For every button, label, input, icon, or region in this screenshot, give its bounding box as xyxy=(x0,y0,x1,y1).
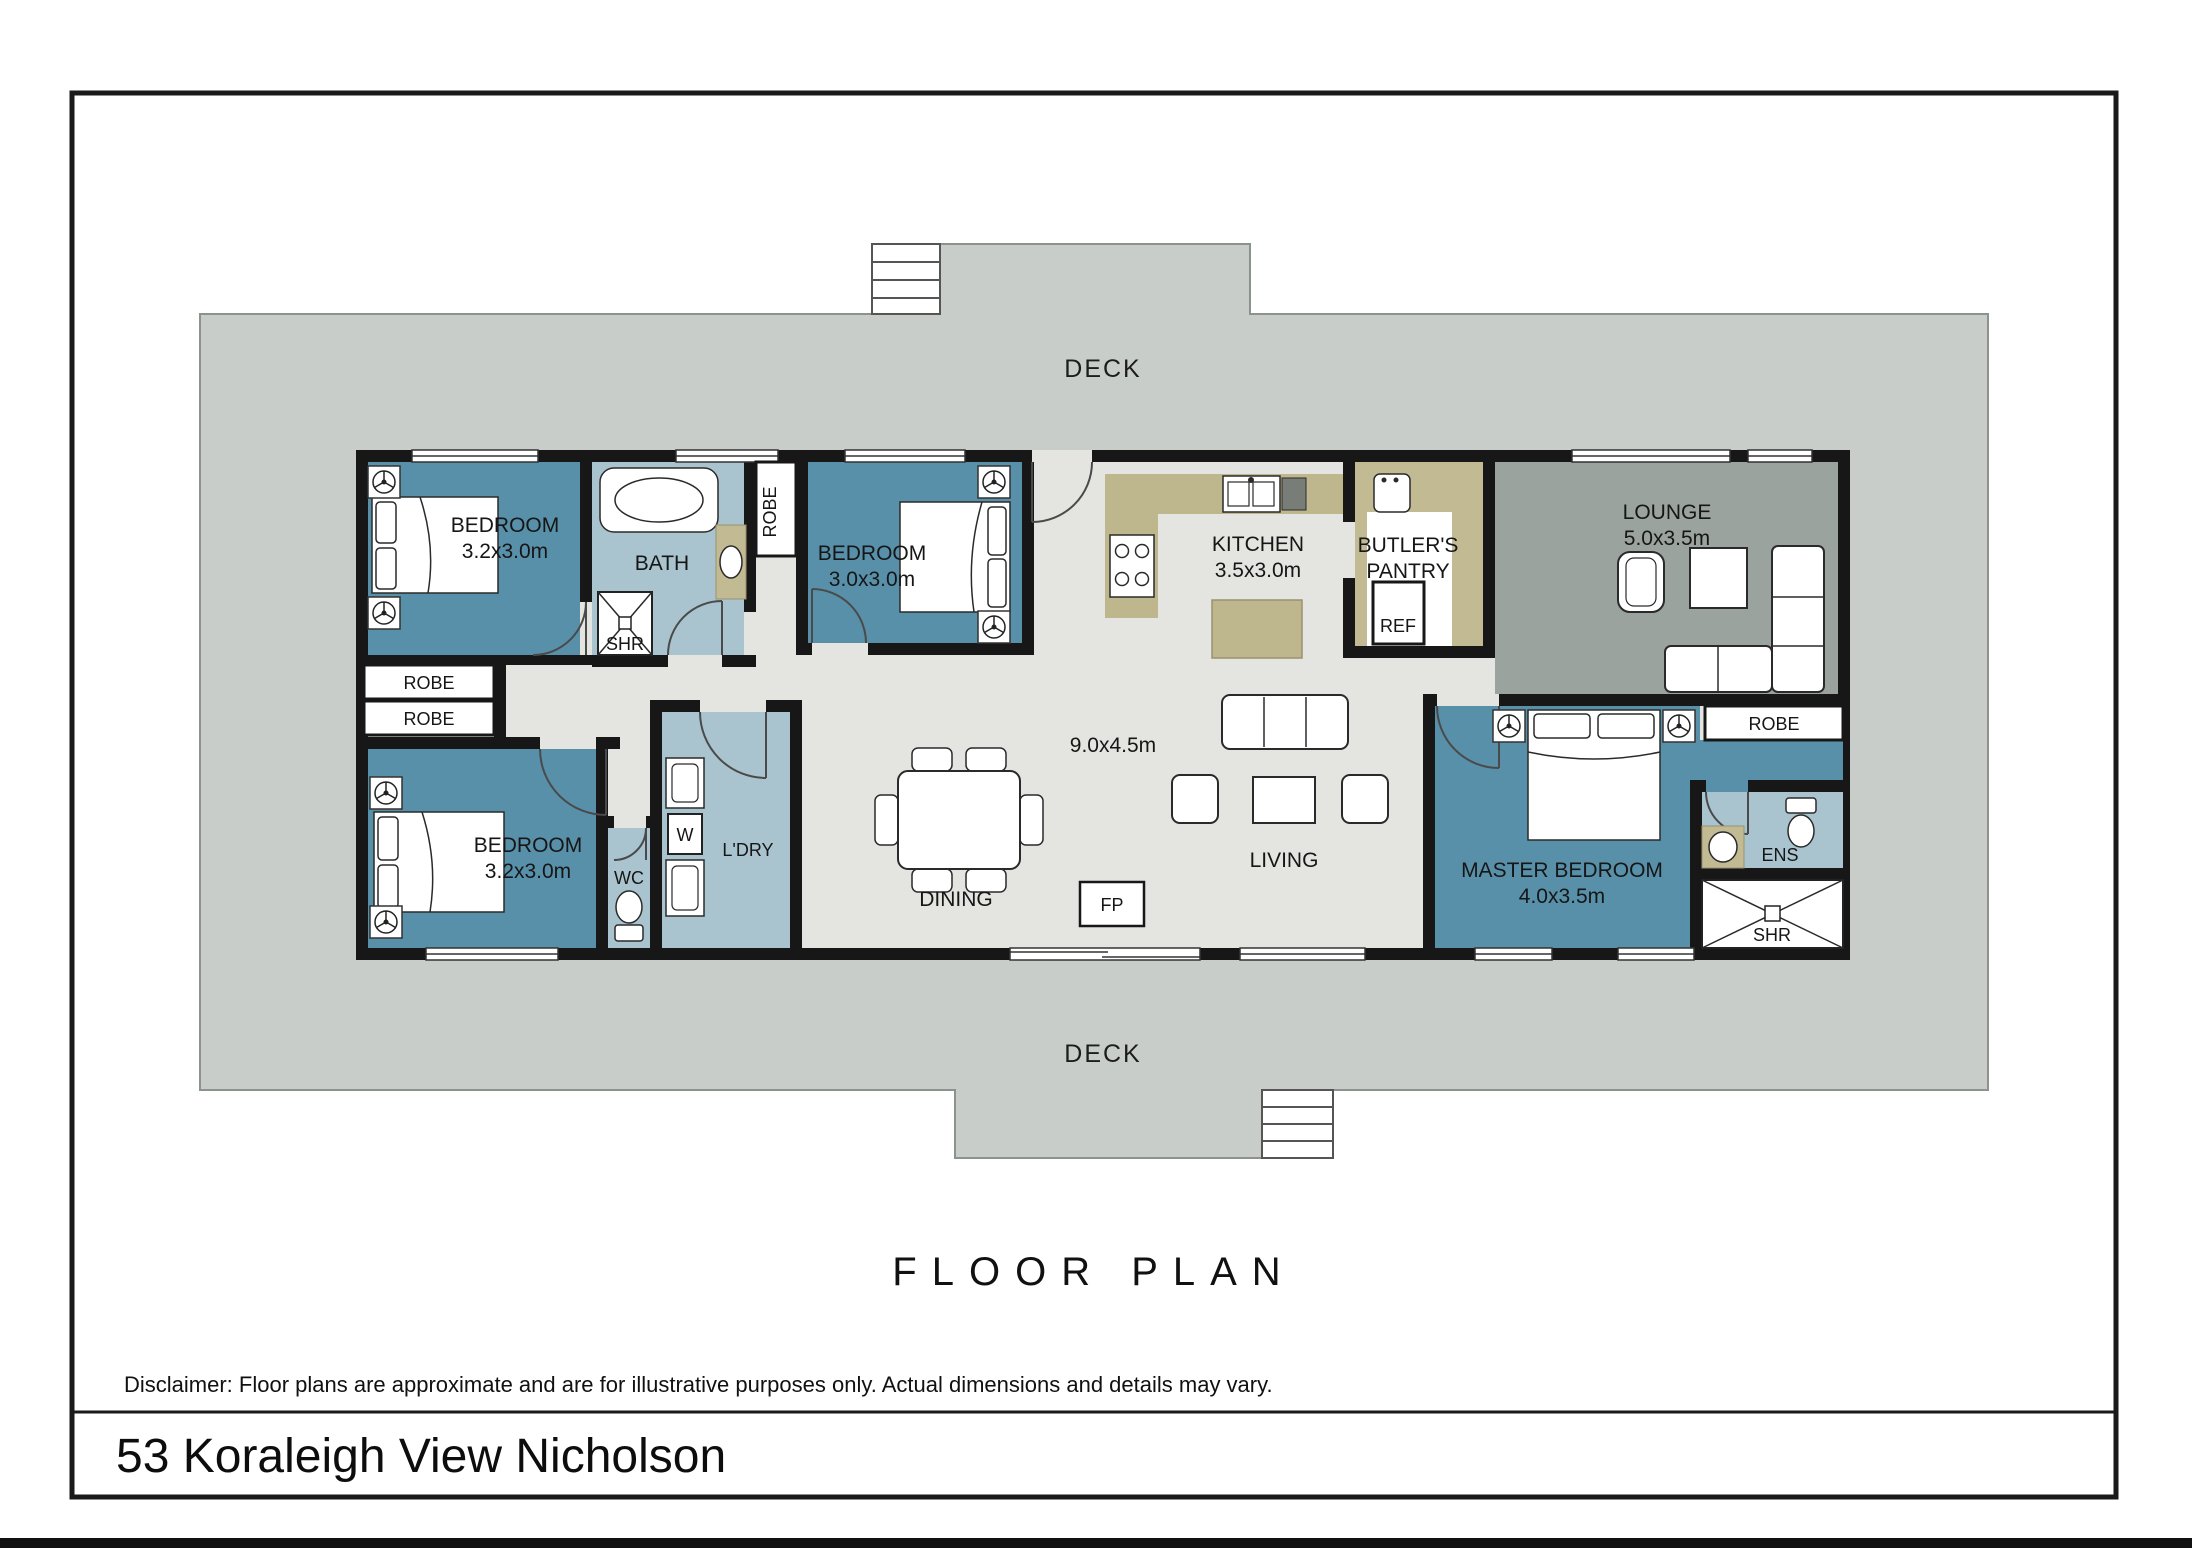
bath-label: BATH xyxy=(635,552,689,575)
ceiling-fan-icon xyxy=(978,466,1010,498)
washer-label: W xyxy=(677,825,694,845)
ceiling-fan-icon xyxy=(370,777,402,809)
bedroom1-label: BEDROOM xyxy=(451,514,560,537)
ceiling-fan-icon xyxy=(368,466,400,498)
pantry-sink xyxy=(1374,474,1410,512)
deck-top-label: DECK xyxy=(1064,355,1141,383)
deck-bottom-label: DECK xyxy=(1064,1040,1141,1068)
sliding-door-to-deck xyxy=(1010,948,1200,960)
robe-hall-label: ROBE xyxy=(760,486,780,537)
ceiling-fan-icon xyxy=(1663,710,1695,742)
page-bottom-rule xyxy=(0,1538,2192,1548)
floor-plan-page: FLOOR PLAN Disclaimer: Floor plans are a… xyxy=(0,0,2192,1552)
open-plan-dim: 9.0x4.5m xyxy=(1070,734,1156,757)
bath-shr-label: SHR xyxy=(606,634,644,654)
robe1-label: ROBE xyxy=(403,673,454,693)
ensuite-vanity xyxy=(1702,826,1744,868)
ceiling-fan-icon xyxy=(1493,710,1525,742)
kitchen-island xyxy=(1212,600,1302,658)
master-label: MASTER BEDROOM xyxy=(1461,859,1663,882)
coffee-table xyxy=(1253,777,1315,823)
laundry-label: L'DRY xyxy=(722,840,773,860)
living-armchair-right xyxy=(1342,775,1388,823)
ceiling-fan-icon xyxy=(370,906,402,938)
bedroom3-dim: 3.2x3.0m xyxy=(485,860,571,883)
bedroom1-dim: 3.2x3.0m xyxy=(462,540,548,563)
laundry-tub xyxy=(666,860,704,916)
ensuite-toilet xyxy=(1786,798,1816,847)
stove-cooktop xyxy=(1110,535,1154,597)
bedroom2-dim: 3.0x3.0m xyxy=(829,568,915,591)
kitchen-sink xyxy=(1223,476,1280,512)
bath-vanity xyxy=(716,525,746,599)
ens-label: ENS xyxy=(1761,845,1798,865)
master-dim: 4.0x3.5m xyxy=(1519,885,1605,908)
fp-label: FP xyxy=(1100,895,1123,915)
address-text: 53 Koraleigh View Nicholson xyxy=(116,1430,726,1483)
bedroom2-label: BEDROOM xyxy=(818,542,927,565)
dishwasher xyxy=(1282,478,1306,510)
butlers-pantry-label2: PANTRY xyxy=(1366,560,1449,583)
lounge-label: LOUNGE xyxy=(1623,501,1712,524)
bed-master xyxy=(1528,710,1660,840)
robe2-label: ROBE xyxy=(403,709,454,729)
lounge-side-table xyxy=(1690,548,1747,608)
stairs-bottom xyxy=(1262,1090,1333,1158)
floor-plan-svg: FLOOR PLAN Disclaimer: Floor plans are a… xyxy=(0,0,2192,1552)
floor-plan-title: FLOOR PLAN xyxy=(892,1250,1295,1294)
wc-label: WC xyxy=(614,868,644,888)
ens-shr-label: SHR xyxy=(1753,925,1791,945)
dining-label: DINING xyxy=(919,888,993,911)
stairs-top xyxy=(872,244,940,314)
ref-label: REF xyxy=(1380,616,1416,636)
butlers-pantry-label1: BUTLER'S xyxy=(1358,534,1459,557)
kitchen-label: KITCHEN xyxy=(1212,533,1304,556)
bedroom3-label: BEDROOM xyxy=(474,834,583,857)
kitchen-dim: 3.5x3.0m xyxy=(1215,559,1301,582)
living-label: LIVING xyxy=(1250,849,1319,872)
living-armchair-left xyxy=(1172,775,1218,823)
bathtub xyxy=(600,468,718,532)
ceiling-fan-icon xyxy=(978,611,1010,643)
ceiling-fan-icon xyxy=(368,597,400,629)
living-sofa xyxy=(1222,695,1348,749)
lounge-dim: 5.0x3.5m xyxy=(1624,527,1710,550)
laundry-trough xyxy=(666,758,704,808)
disclaimer-text: Disclaimer: Floor plans are approximate … xyxy=(124,1372,1273,1397)
robe-master-label: ROBE xyxy=(1748,714,1799,734)
lounge-armchair xyxy=(1618,552,1664,612)
entry-opening xyxy=(1032,450,1092,462)
wc-toilet xyxy=(615,891,643,941)
